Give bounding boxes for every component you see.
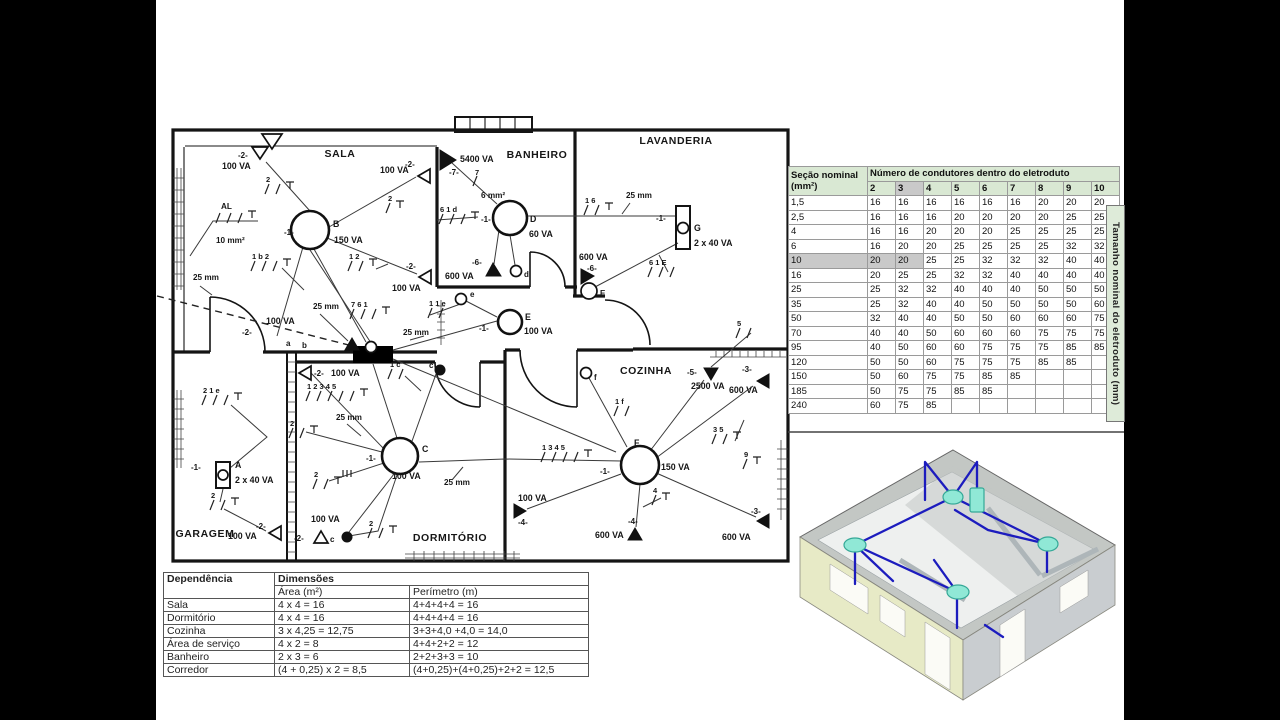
table-cell: 1,5 <box>789 196 868 211</box>
conduit-size: 25 mm <box>403 328 429 337</box>
outlet-triangle <box>269 526 281 540</box>
table-cell: 150 <box>789 370 868 385</box>
table-row: 1855075758585 <box>789 384 1120 399</box>
fixture-power: 150 VA <box>334 235 363 245</box>
fixture-letter: E <box>600 289 606 298</box>
dimension-table-body: Sala4 x 4 = 164+4+4+4 = 16Dormitório4 x … <box>164 599 589 677</box>
table-cell: 60 <box>924 355 952 370</box>
column-header: 4 <box>924 181 952 196</box>
table-cell: 25 <box>980 239 1008 254</box>
outlet-power: 600 VA <box>595 530 624 540</box>
tick-label: 1 f <box>615 397 624 406</box>
table-cell: 75 <box>1064 326 1092 341</box>
table-row: Área de serviço4 x 2 = 84+4+2+2 = 12 <box>164 638 589 651</box>
outlet-triangle <box>757 374 769 388</box>
tick-label: 7 <box>475 168 479 177</box>
ceiling-box-3d <box>943 490 963 504</box>
table-row: 95405060607575758585 <box>789 341 1120 356</box>
ceiling-light-C <box>382 438 418 474</box>
circuit-tag: -2- <box>256 522 266 531</box>
circuit-tag: -1- <box>656 214 666 223</box>
table-cell: 16 <box>924 210 952 225</box>
fixture-letter: C <box>422 444 429 454</box>
switch-letter: f <box>594 373 597 382</box>
table-cell: 75 <box>952 370 980 385</box>
table-cell: 40 <box>1064 268 1092 283</box>
fixture-letter: F <box>634 438 640 448</box>
column-header: 2 <box>868 181 896 196</box>
fixture-power: 2 x 40 VA <box>235 475 274 485</box>
tick-label: 1 3 4 5 <box>542 443 565 452</box>
switch-letter: c <box>429 361 434 370</box>
table-cell: 3 x 4,25 = 12,75 <box>275 625 410 638</box>
table-cell: 20 <box>896 254 924 269</box>
table-cell: 75 <box>1008 355 1036 370</box>
table-cell: 75 <box>980 355 1008 370</box>
circuit-tag: -6- <box>587 264 597 273</box>
circuit-tag: -1- <box>284 228 294 237</box>
table-cell: 16 <box>868 196 896 211</box>
stove-outlet-triangle <box>704 368 718 380</box>
column-header: 8 <box>1036 181 1064 196</box>
outlet-triangle <box>514 504 526 518</box>
table-row: 1205050607575758585 <box>789 355 1120 370</box>
outlet-power: 100 VA <box>311 514 340 524</box>
tick-label: 2 <box>266 175 270 184</box>
table-cell: 32 <box>980 254 1008 269</box>
tick-label: 2 <box>369 519 373 528</box>
room-label-banheiro: BANHEIRO <box>507 149 568 161</box>
table-cell: 16 <box>896 210 924 225</box>
table-cell: 50 <box>868 370 896 385</box>
house-3d-model <box>800 450 1115 700</box>
table-cell: 2,5 <box>789 210 868 225</box>
column-header: 5 <box>952 181 980 196</box>
outlet-power: 100 VA <box>392 283 421 293</box>
table-cell: 4+4+2+2 = 12 <box>410 638 589 651</box>
table-cell: 32 <box>1008 254 1036 269</box>
table-cell: 25 <box>924 268 952 283</box>
table-row: 4161620202025252525 <box>789 225 1120 240</box>
table-cell: 20 <box>980 225 1008 240</box>
switch-e <box>456 294 467 305</box>
tick-label: 1 1 e <box>429 299 446 308</box>
fixture-power: 100 VA <box>392 471 421 481</box>
table-row: 25253232404040505050 <box>789 283 1120 298</box>
room-label-lavanderia: LAVANDERIA <box>639 135 712 147</box>
table-cell: 85 <box>1008 370 1036 385</box>
table-row: 10202025253232324040 <box>789 254 1120 269</box>
outlet-power: 100 VA <box>266 316 295 326</box>
table-cell: 20 <box>868 268 896 283</box>
electrical-symbols <box>216 147 769 543</box>
table-cell: 50 <box>924 326 952 341</box>
switch-c-bottom <box>342 532 353 543</box>
table-cell: 3+3+4,0 +4,0 = 14,0 <box>410 625 589 638</box>
table-cell: 75 <box>924 370 952 385</box>
tick-label: 1 b 2 <box>252 252 269 261</box>
table-row: Corredor(4 + 0,25) x 2 = 8,5(4+0,25)+(4+… <box>164 664 589 677</box>
outlet-triangle <box>486 263 501 276</box>
switch-c-top <box>435 365 446 376</box>
table-cell: 4 x 4 = 16 <box>275 599 410 612</box>
feeder-label: AL <box>221 202 232 211</box>
conductors-header: Número de condutores dentro do eletrodut… <box>868 167 1120 182</box>
table-cell <box>1008 384 1036 399</box>
table-cell: 4 <box>789 225 868 240</box>
conduit-table: Seção nominal (mm²) Número de condutores… <box>788 166 1120 414</box>
table-cell <box>952 399 980 414</box>
ceiling-light-E <box>498 310 522 334</box>
table-cell: 85 <box>924 399 952 414</box>
outlet-triangle <box>314 531 328 543</box>
column-header: 3 <box>896 181 924 196</box>
table-cell: 60 <box>1036 312 1064 327</box>
table-cell: 50 <box>896 355 924 370</box>
outlet-power: 600 VA <box>445 271 474 281</box>
table-cell: 40 <box>868 341 896 356</box>
fixture-power: 2 x 40 VA <box>694 238 733 248</box>
table-cell: 50 <box>980 312 1008 327</box>
tick-label: 1 6 <box>585 196 595 205</box>
column-header: 6 <box>980 181 1008 196</box>
table-cell: 50 <box>952 312 980 327</box>
circuit-tag: -6- <box>472 258 482 267</box>
switch-letter: c <box>330 535 335 544</box>
table-cell: 40 <box>924 297 952 312</box>
table-cell: 10 <box>789 254 868 269</box>
table-cell: 75 <box>924 384 952 399</box>
table-cell: 40 <box>1008 268 1036 283</box>
table-cell: 75 <box>896 399 924 414</box>
column-header: 10 <box>1092 181 1120 196</box>
tick-label: 1 c <box>390 360 400 369</box>
switch-b <box>366 342 377 353</box>
circuit-tag: -3- <box>742 365 752 374</box>
table-cell: 60 <box>1008 326 1036 341</box>
table-cell: 95 <box>789 341 868 356</box>
table-cell: Sala <box>164 599 275 612</box>
table-cell: 32 <box>868 312 896 327</box>
dimension-col1-header: Dependência <box>164 573 275 599</box>
fixture-power: 60 VA <box>529 229 553 239</box>
circuit-tag: -4- <box>628 517 638 526</box>
column-header: 7 <box>1008 181 1036 196</box>
circuit-tag: -2- <box>314 369 324 378</box>
outlet-triangle <box>757 514 769 528</box>
table-cell: 20 <box>1008 210 1036 225</box>
table-cell: 50 <box>1064 283 1092 298</box>
fluorescent-G-lamp <box>678 223 689 234</box>
table-cell <box>1008 399 1036 414</box>
switch-letter: e <box>470 290 475 299</box>
table-cell: 20 <box>868 254 896 269</box>
tick-label: 4 <box>653 486 658 495</box>
outlet-power: 600 VA <box>579 252 608 262</box>
table-cell: 40 <box>868 326 896 341</box>
table-cell: 20 <box>924 239 952 254</box>
table-cell: 40 <box>1036 268 1064 283</box>
table-cell: Área de serviço <box>164 638 275 651</box>
table-cell: 16 <box>896 225 924 240</box>
ceiling-box-3d <box>844 538 866 552</box>
table-cell: 25 <box>868 283 896 298</box>
fixture-power: 150 VA <box>661 462 690 472</box>
table-cell: 120 <box>789 355 868 370</box>
dimension-col2-header: Dimensões <box>275 573 589 586</box>
outlet-triangle <box>628 528 642 540</box>
table-cell: 32 <box>1064 239 1092 254</box>
conduit-size: 25 mm <box>313 302 339 311</box>
room-label-sala: SALA <box>325 148 356 160</box>
table-cell: 16 <box>896 196 924 211</box>
table-cell: 240 <box>789 399 868 414</box>
table-cell: 4 x 4 = 16 <box>275 612 410 625</box>
table-cell <box>1064 399 1092 414</box>
floor-plan: SALA BANHEIRO LAVANDERIA COZINHA DORMITÓ… <box>157 117 788 561</box>
circuit-tag: -5- <box>687 368 697 377</box>
ceiling-light-D <box>493 201 527 235</box>
table-cell: Banheiro <box>164 651 275 664</box>
fixture-power: 100 VA <box>524 326 553 336</box>
tick-label: 5 <box>737 319 741 328</box>
switch-d <box>511 266 522 277</box>
table-cell: 4+4+4+4 = 16 <box>410 612 589 625</box>
eletroduto-side-strip: Tamanho nominal do eletroduto (mm) <box>1106 205 1125 422</box>
fixture-letter: A <box>235 460 242 470</box>
table-cell: 50 <box>1036 283 1064 298</box>
table-cell: 70 <box>789 326 868 341</box>
table-cell <box>1064 384 1092 399</box>
table-row: Banheiro2 x 3 = 62+2+3+3 = 10 <box>164 651 589 664</box>
table-cell: 85 <box>952 384 980 399</box>
table-row: Dormitório4 x 4 = 164+4+4+4 = 16 <box>164 612 589 625</box>
tick-label: 6 1 d <box>440 205 458 214</box>
circuit-tag: -2- <box>238 151 248 160</box>
table-cell: 40 <box>924 312 952 327</box>
conduit-size: 6 mm² <box>481 191 505 200</box>
table-cell: 60 <box>980 326 1008 341</box>
table-cell: 50 <box>868 384 896 399</box>
ceiling-box-3d <box>947 585 969 599</box>
ceiling-light-hall <box>581 283 597 299</box>
table-row: 50324040505060606075 <box>789 312 1120 327</box>
outlet-triangle <box>299 366 311 380</box>
switch-letter: b <box>302 341 307 350</box>
tick-label: 6 1 E <box>649 258 667 267</box>
tick-label: 9 <box>744 450 748 459</box>
table-row: 70404050606060757575 <box>789 326 1120 341</box>
table-row: 2,5161616202020202525 <box>789 210 1120 225</box>
switch-letter: a <box>286 339 291 348</box>
tick-label: 2 <box>314 470 318 479</box>
conduit-size: 25 mm <box>444 478 470 487</box>
table-cell: (4+0,25)+(4+0,25)+2+2 = 12,5 <box>410 664 589 677</box>
table-cell: 75 <box>1036 341 1064 356</box>
table-cell: 60 <box>896 370 924 385</box>
table-row: Cozinha3 x 4,25 = 12,753+3+4,0 +4,0 = 14… <box>164 625 589 638</box>
circuit-tag: -2- <box>294 534 304 543</box>
table-cell: 40 <box>1008 283 1036 298</box>
table-cell: 2+2+3+3 = 10 <box>410 651 589 664</box>
table-cell: Cozinha <box>164 625 275 638</box>
table-cell: 60 <box>924 341 952 356</box>
ceiling-light-F <box>621 446 659 484</box>
table-cell: 50 <box>980 297 1008 312</box>
outlet-power: 600 VA <box>722 532 751 542</box>
table-cell: 20 <box>1036 196 1064 211</box>
room-label-garagem: GARAGEM <box>175 528 234 540</box>
table-cell: Dormitório <box>164 612 275 625</box>
circuit-tag: -1- <box>481 215 491 224</box>
table-cell: 20 <box>1064 196 1092 211</box>
table-cell: 60 <box>1008 312 1036 327</box>
table-cell: 32 <box>896 297 924 312</box>
outlet-power: 100 VA <box>518 493 547 503</box>
circuit-tag: -1- <box>366 454 376 463</box>
table-cell: 16 <box>868 210 896 225</box>
table-cell: 25 <box>952 254 980 269</box>
tick-label: 2 <box>211 491 215 500</box>
table-cell: 32 <box>952 268 980 283</box>
area-header: Área (m²) <box>275 586 410 599</box>
table-row: 1,5161616161616202020 <box>789 196 1120 211</box>
table-cell: 25 <box>789 283 868 298</box>
circuit-tag: -1- <box>191 463 201 472</box>
table-cell: 20 <box>980 210 1008 225</box>
table-cell: 16 <box>868 225 896 240</box>
table-cell: 50 <box>789 312 868 327</box>
conduit-size: 25 mm <box>626 191 652 200</box>
table-row: 16202525323240404040 <box>789 268 1120 283</box>
table-cell: 16 <box>980 196 1008 211</box>
conduit-size: 25 mm <box>193 273 219 282</box>
table-cell: 50 <box>1064 297 1092 312</box>
table-cell: 60 <box>868 399 896 414</box>
conduit-table-body: 1,51616161616162020202,51616162020202025… <box>789 196 1120 414</box>
conduit-size: 25 mm <box>336 413 362 422</box>
table-cell: 25 <box>896 268 924 283</box>
table-cell: 75 <box>1036 326 1064 341</box>
table-cell: 25 <box>924 254 952 269</box>
table-cell: 20 <box>896 239 924 254</box>
outlet-triangle <box>418 169 430 183</box>
table-cell: 50 <box>1036 297 1064 312</box>
room-label-cozinha: COZINHA <box>620 365 672 377</box>
switch-f <box>581 368 592 379</box>
table-cell: 85 <box>980 370 1008 385</box>
table-cell <box>1036 384 1064 399</box>
table-cell: 25 <box>1064 210 1092 225</box>
table-cell: 16 <box>952 196 980 211</box>
table-cell: 85 <box>1036 355 1064 370</box>
circuit-tag: -2- <box>406 262 416 271</box>
table-cell: 20 <box>952 225 980 240</box>
dimension-table: Dependência Dimensões Área (m²) Perímetr… <box>163 572 589 677</box>
fixture-letter: G <box>694 223 701 233</box>
table-cell: 25 <box>1036 225 1064 240</box>
table-cell: 85 <box>1064 341 1092 356</box>
circuit-tag: -1- <box>479 324 489 333</box>
section-header: Seção nominal (mm²) <box>789 167 868 196</box>
outlet-power: 600 VA <box>729 385 758 395</box>
tick-label: 2 <box>388 194 392 203</box>
ceiling-light-B <box>291 211 329 249</box>
table-cell: 32 <box>980 268 1008 283</box>
outlet-power: 2500 VA <box>691 381 725 391</box>
table-cell: 50 <box>868 355 896 370</box>
table-row: 35253240405050505060 <box>789 297 1120 312</box>
table-cell: 16 <box>868 239 896 254</box>
table-cell: 32 <box>896 283 924 298</box>
table-cell: 16 <box>924 196 952 211</box>
outlet-power: 100 VA <box>222 161 251 171</box>
table-cell: 4+4+4+4 = 16 <box>410 599 589 612</box>
table-cell <box>980 399 1008 414</box>
table-cell: 40 <box>896 312 924 327</box>
table-cell: 20 <box>952 210 980 225</box>
table-cell: 2 x 3 = 6 <box>275 651 410 664</box>
table-cell: 40 <box>952 297 980 312</box>
circuit-tag: -2- <box>405 160 415 169</box>
table-cell: 75 <box>952 355 980 370</box>
tick-label: 1 2 <box>349 252 359 261</box>
room-label-dormitorio: DORMITÓRIO <box>413 531 487 544</box>
tick-label: 2 1 e <box>203 386 220 395</box>
table-cell: 85 <box>980 384 1008 399</box>
table-cell: 75 <box>1008 341 1036 356</box>
table-cell: 25 <box>1064 225 1092 240</box>
table-cell: 16 <box>1008 196 1036 211</box>
circuit-tag: -7- <box>449 168 459 177</box>
outlet-triangle <box>419 270 431 284</box>
ceiling-box-3d <box>1038 537 1058 551</box>
table-cell <box>1064 370 1092 385</box>
outlet-triangle <box>252 147 268 159</box>
section-header-line2: (mm²) <box>791 181 865 192</box>
tick-label: 7 6 1 <box>351 300 368 309</box>
table-row: 150506075758585 <box>789 370 1120 385</box>
table-cell: 50 <box>1008 297 1036 312</box>
column-header: 9 <box>1064 181 1092 196</box>
section-header-line1: Seção nominal <box>791 170 865 181</box>
switch-letter: d <box>524 270 529 279</box>
table-row: Sala4 x 4 = 164+4+4+4 = 16 <box>164 599 589 612</box>
table-cell <box>1036 399 1064 414</box>
table-cell: 25 <box>1036 239 1064 254</box>
table-cell: 6 <box>789 239 868 254</box>
table-cell: 25 <box>868 297 896 312</box>
fixture-letter: E <box>525 312 531 322</box>
table-cell: 60 <box>1064 312 1092 327</box>
circuit-tag: -4- <box>518 518 528 527</box>
table-cell: 32 <box>1036 254 1064 269</box>
outlet-power: 100 VA <box>228 531 257 541</box>
eletroduto-side-label: Tamanho nominal do eletroduto (mm) <box>1110 222 1121 405</box>
table-cell: 85 <box>1064 355 1092 370</box>
table-cell: 35 <box>789 297 868 312</box>
perimeter-header: Perímetro (m) <box>410 586 589 599</box>
table-cell: 40 <box>896 326 924 341</box>
fixture-letter: D <box>530 214 536 224</box>
table-cell: 40 <box>1064 254 1092 269</box>
table-cell: 60 <box>952 341 980 356</box>
table-cell: 40 <box>952 283 980 298</box>
table-cell: 20 <box>924 225 952 240</box>
table-cell: 32 <box>924 283 952 298</box>
conduit-size: 10 mm² <box>216 236 245 245</box>
junction-box-3d <box>970 488 984 512</box>
